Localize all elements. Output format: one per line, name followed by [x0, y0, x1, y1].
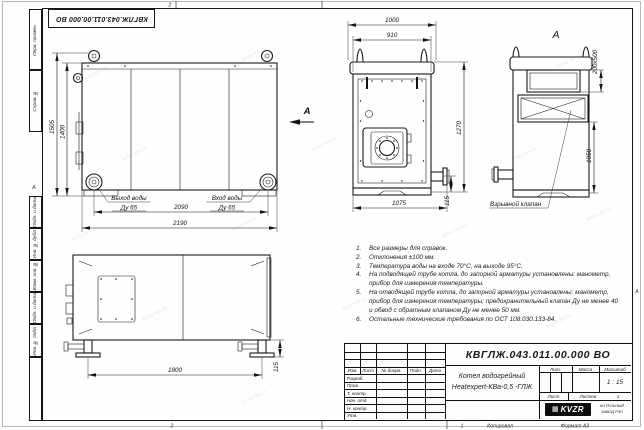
dim-plan-length: 1800	[168, 367, 183, 374]
drawing-sheet: Перв. примен. Справ. № Подп. и дата Инв.…	[0, 0, 644, 430]
row-utv: Утв.	[347, 413, 357, 418]
scale-value: 1 : 15	[599, 372, 631, 392]
lifting-lug	[421, 49, 427, 62]
col-list: Лист	[360, 368, 376, 373]
dim-side-bottom: 1075	[392, 200, 407, 207]
dim-front-width-inner: 2090	[173, 204, 189, 211]
row-nachotd: Нач. отд.	[347, 398, 368, 403]
note-number: 2.	[354, 254, 369, 263]
lit-label: Лит.	[539, 367, 572, 372]
boiler-body-rear	[513, 70, 589, 190]
format-label: Формат А3	[561, 424, 589, 430]
boiler-cap	[350, 62, 434, 74]
sheets-label: Листов	[568, 394, 608, 399]
inlet-flange	[260, 174, 276, 190]
sheets-value: 1	[608, 394, 628, 399]
dim-plan-offset: 115	[273, 361, 280, 372]
product-name-line1: Котел водогрейный	[459, 372, 526, 382]
logo-text: KVZR	[561, 406, 584, 414]
access-panel	[98, 276, 135, 322]
skid-base	[353, 188, 431, 195]
row-prov: Пров.	[347, 383, 359, 388]
leg	[84, 340, 92, 353]
product-name: Котел водогрейный Heatexpert-КВа-0,5 -ГЛ…	[445, 365, 539, 400]
lifting-lug	[513, 47, 519, 57]
lifting-lug	[583, 47, 589, 57]
sight-glass	[366, 111, 373, 118]
watermark-text: kvzar-tex.ru	[311, 135, 338, 152]
row-nkontr: Н. контр.	[347, 406, 368, 411]
note-number: 6.	[354, 316, 369, 325]
watermark-text: kvzar-tex.ru	[231, 215, 258, 232]
lifting-eye	[89, 51, 100, 62]
outlet-dn-label: Ду 65	[120, 205, 138, 212]
dim-side-stub: 115	[444, 195, 451, 206]
note-text: Отклонения ±100 мм.	[369, 254, 622, 263]
note-number: 1.	[354, 245, 369, 254]
explosion-valve-callout: Взрывной клапан	[490, 200, 542, 208]
logo-mark-icon: ▦	[552, 406, 559, 413]
zone-left: А	[31, 185, 36, 191]
col-data: Дата	[425, 368, 445, 373]
note-text: Остальные технические требования по ОСТ …	[369, 316, 622, 325]
lifting-eye	[262, 51, 273, 62]
zone-bottom-right: 1	[461, 424, 464, 430]
col-izm: Изм.	[345, 368, 360, 373]
technical-notes: 1.Все размеры для справок. 2.Отклонения …	[354, 245, 622, 324]
pipe-stub	[492, 167, 513, 182]
explosion-valve	[518, 95, 588, 122]
note-item: 6.Остальные технические требования по ОС…	[354, 316, 622, 325]
skid-foot	[242, 190, 276, 196]
watermark-text: kvzar-tex.ru	[141, 305, 168, 322]
dim-side-height: 1270	[456, 121, 463, 136]
pipe-stub	[431, 168, 449, 185]
note-item: 2.Отклонения ±100 мм.	[354, 254, 622, 263]
org-name: КОТЕЛЬНЫЙ ЗАВОД РЭП	[593, 402, 631, 417]
lifting-lug	[357, 49, 363, 62]
copied-label: Копировал	[487, 424, 513, 430]
product-name-line2: Heatexpert-КВа-0,5 -ГЛЖ	[452, 383, 532, 393]
watermark-text: kvzar-tex.ru	[241, 388, 268, 405]
inlet-dn-label: Ду 65	[218, 205, 236, 212]
zone-right: А	[634, 289, 639, 295]
side-view: 1000 910 1270 1075 115	[348, 17, 468, 212]
boiler-body-front	[82, 63, 277, 190]
dim-opening-size: 200х500	[592, 49, 599, 75]
burner-door	[363, 128, 411, 167]
row-razrab: Разраб.	[347, 376, 364, 381]
note-item: 4.На подводящей трубе котла, до запорной…	[354, 271, 622, 289]
outlet-flange	[86, 174, 102, 190]
note-number: 3.	[354, 263, 369, 272]
note-text: На подводящей трубе котла, до запорной а…	[369, 271, 622, 289]
outlet-label: Выход воды	[111, 194, 147, 202]
inlet-label: Вход воды	[212, 194, 243, 202]
note-text: Все размеры для справок.	[369, 245, 622, 254]
col-docum: № докум.	[376, 368, 407, 373]
dim-front-height-total: 1505	[49, 120, 56, 135]
doc-number: КВГЛЖ.043.011.00.000 ВО	[445, 344, 631, 365]
org-line2: ЗАВОД РЭП	[601, 410, 623, 416]
flue-opening	[527, 70, 580, 92]
sheet-label: Лист	[539, 394, 568, 399]
zone-bottom: 2	[170, 424, 174, 430]
scale-label: Масштаб	[599, 367, 631, 372]
watermark-text: kvzar-tex.ru	[586, 205, 613, 222]
dim-side-top-total: 1000	[385, 17, 400, 24]
note-item: 5.На отводящей трубе котла, до запорной …	[354, 289, 622, 315]
mass-label: Масса	[572, 367, 599, 372]
col-podp: Подп.	[407, 368, 425, 373]
view-arrow-label: А	[303, 106, 311, 117]
note-text: На отводящей трубе котла, до запорной ар…	[369, 289, 622, 315]
zone-top: 2	[168, 3, 172, 9]
boiler-body-side	[353, 74, 431, 188]
view-a-label: А	[551, 29, 559, 41]
view-a: А 200х500	[489, 29, 604, 208]
leg	[258, 340, 266, 353]
note-item: 1.Все размеры для справок.	[354, 245, 622, 254]
side-bracket	[66, 285, 73, 296]
dim-viewa-height: 1050	[586, 149, 593, 164]
title-block: Изм. Лист № докум. Подп. Дата Разраб. Пр…	[344, 343, 633, 421]
watermark-text: kvzar-tex.ru	[441, 222, 468, 239]
note-number: 5.	[354, 289, 369, 315]
plan-view: 1800 115	[64, 255, 284, 379]
dim-front-width-total: 2190	[172, 220, 188, 227]
boiler-body-plan	[73, 255, 270, 340]
view-direction-arrow	[289, 119, 300, 125]
foot-plate	[250, 353, 274, 357]
watermark-text: kvzar-tex.ru	[121, 145, 148, 162]
dim-side-top-inner: 910	[387, 32, 398, 39]
foot-plate	[76, 353, 100, 357]
dim-front-height-body: 1400	[60, 125, 67, 140]
kvzr-logo: ▦ KVZR	[545, 403, 591, 416]
row-tkontr: Т. контр.	[347, 391, 367, 396]
side-bracket	[66, 303, 73, 314]
note-number: 4.	[354, 271, 369, 289]
watermark-text: kvzar-tex.ru	[556, 52, 583, 69]
watermark-text: kvzar-tex.ru	[81, 65, 108, 82]
watermark-text: kvzar-tex.ru	[511, 145, 538, 162]
